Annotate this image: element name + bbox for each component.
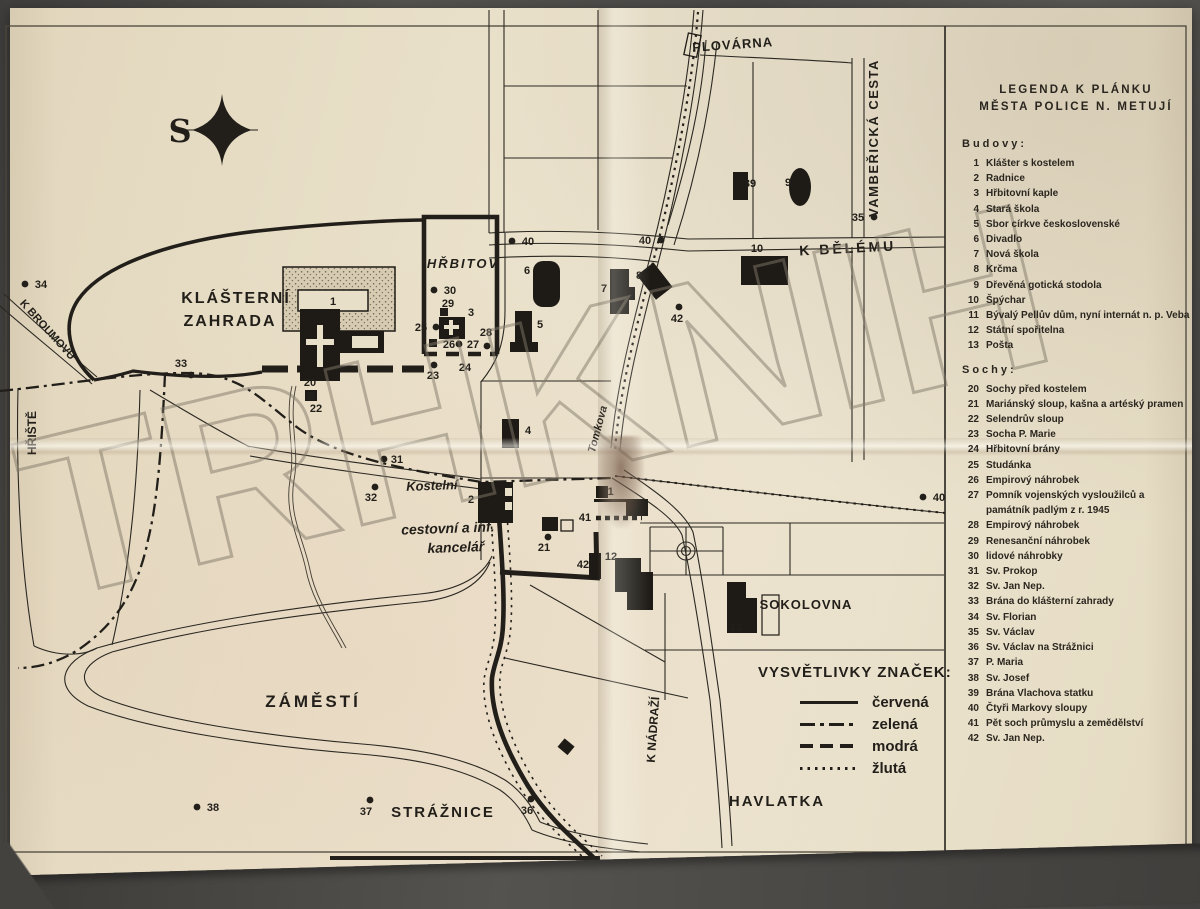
marker-dot: [194, 804, 201, 811]
marker-number: 5: [537, 319, 543, 331]
map-label: HŘBITOV: [427, 256, 499, 271]
legend-item: 21Mariánský sloup, kašna a artéský prame…: [962, 397, 1190, 412]
legend-item-text: Brána Vlachova statku: [986, 686, 1190, 701]
legend-item: 31Sv. Prokop: [962, 564, 1190, 579]
marker-number: 40: [933, 492, 945, 504]
legend-item-text: Renesanční náhrobek: [986, 534, 1190, 549]
map-label: Kostelní: [406, 477, 459, 494]
legend-item-text: lidové náhrobky: [986, 549, 1190, 564]
legend-title-line1: LEGENDA K PLÁNKU: [962, 82, 1190, 99]
marker-number: 40: [639, 235, 651, 247]
building-8: [637, 262, 673, 299]
line-style-sample-dashed: [800, 744, 858, 748]
marker-dot: [431, 287, 438, 294]
legend-item-text: Socha P. Marie: [986, 427, 1190, 442]
map-label: SOKOLOVNA: [760, 597, 853, 612]
legend-item-text: Klášter s kostelem: [986, 156, 1190, 171]
buildings: [283, 33, 811, 755]
line-style-sample-solid: [800, 701, 858, 704]
legend-item-text: Pomník vojenských vysloužilců a památník…: [986, 488, 1190, 518]
legend-item: 32Sv. Jan Nep.: [962, 579, 1190, 594]
marker-number: 34: [35, 279, 48, 291]
legend-item-text: Empirový náhrobek: [986, 473, 1190, 488]
map-label: ZÁMĚSTÍ: [265, 692, 361, 711]
marker-number: 6: [524, 265, 530, 277]
legend-item-number: 25: [962, 458, 979, 473]
marker-dot: [431, 362, 438, 369]
legend-item-number: 33: [962, 594, 979, 609]
legend-item-number: 10: [962, 293, 979, 308]
legend-item-number: 29: [962, 534, 979, 549]
marker-number: 42: [577, 559, 589, 571]
legend-item: 3Hřbitovní kaple: [962, 186, 1190, 201]
legend-item-number: 1: [962, 156, 979, 171]
legend-item-number: 35: [962, 625, 979, 640]
legend-item-text: Mariánský sloup, kašna a artéský pramen: [986, 397, 1190, 412]
marker-number: 9: [785, 177, 791, 189]
map-label: STRÁŽNICE: [391, 803, 495, 821]
symbols-legend-entry: žlutá: [758, 757, 968, 779]
line-style-label: modrá: [872, 738, 918, 755]
legend-item-text: P. Maria: [986, 655, 1190, 670]
legend-item-number: 2: [962, 171, 979, 186]
line-style-label: žlutá: [872, 760, 906, 777]
legend-item-number: 32: [962, 579, 979, 594]
legend-item: 33Brána do klášterní zahrady: [962, 594, 1190, 609]
marker-dot: [545, 534, 552, 541]
route-green-dashdot: [0, 373, 611, 482]
marker-dot: [920, 494, 927, 501]
compass-rose: S: [168, 94, 258, 166]
legend-item: 39Brána Vlachova statku: [962, 686, 1190, 701]
marker-number: 20: [304, 377, 316, 389]
marker-number: 1: [330, 296, 336, 308]
legend-item-text: Dřevěná gotická stodola: [986, 278, 1190, 293]
legend-item: 41Pět soch průmyslu a zemědělství: [962, 716, 1190, 731]
marker-number: 31: [391, 454, 403, 466]
legend-item: 25Studánka: [962, 458, 1190, 473]
legend-item-text: Empirový náhrobek: [986, 518, 1190, 533]
legend-item: 26Empirový náhrobek: [962, 473, 1190, 488]
marker-number: 30: [444, 285, 456, 297]
legend-item-number: 36: [962, 640, 979, 655]
marker-dot: [676, 304, 683, 311]
marker-dot: [528, 796, 535, 803]
legend-item-text: Státní spořitelna: [986, 323, 1190, 338]
marker-number: 24: [459, 362, 472, 374]
marker-number: 12: [605, 551, 617, 563]
legend-item-text: Sv. Josef: [986, 671, 1190, 686]
route-red-main: [492, 502, 594, 858]
legend-item-text: Čtyři Markovy sloupy: [986, 701, 1190, 716]
marker-dot: [433, 324, 440, 331]
map-label: KLÁŠTERNÍ: [181, 288, 291, 307]
legend-sections: Budovy:1Klášter s kostelem2Radnice3Hřbit…: [962, 138, 1190, 747]
map-label: ZAHRADA: [183, 313, 276, 330]
building-4: [502, 419, 519, 448]
legend-item: 12Státní spořitelna: [962, 323, 1190, 338]
map-label: HŘIŠTĚ: [24, 411, 39, 455]
marker-dot: [367, 797, 374, 804]
marker-number: 8: [636, 270, 642, 282]
marker-number: 33: [175, 358, 187, 370]
symbols-legend-title: VYSVĚTLIVKY ZNAČEK:: [758, 664, 968, 681]
legend-item-text: Brána do klášterní zahrady: [986, 594, 1190, 609]
marker-square: [429, 339, 437, 347]
marker-number: 42: [671, 313, 683, 325]
marker-number: 7: [601, 283, 607, 295]
building-12: [615, 558, 653, 610]
legend-item-text: Sv. Václav: [986, 625, 1190, 640]
marker-number: 32: [365, 492, 377, 504]
marker-dot: [22, 281, 29, 288]
legend-item-text: Hřbitovní kaple: [986, 186, 1190, 201]
legend-item-text: Studánka: [986, 458, 1190, 473]
legend-item: 4Stará škola: [962, 202, 1190, 217]
legend-section-heading: Sochy:: [962, 364, 1190, 376]
marker-dot: [188, 372, 195, 379]
legend-item-number: 27: [962, 488, 979, 518]
marker-number: 23: [427, 370, 439, 382]
legend-item-text: Sv. Jan Nep.: [986, 731, 1190, 746]
diamond-building: [558, 738, 575, 755]
legend-item-number: 31: [962, 564, 979, 579]
line-style-sample-dotted: [800, 767, 858, 770]
marker-number: 4: [525, 425, 532, 437]
marker-square: [307, 392, 315, 400]
legend-title: LEGENDA K PLÁNKU MĚSTA POLICE N. METUJÍ: [962, 82, 1190, 116]
marker-number: 41: [579, 512, 591, 524]
legend-title-line2: MĚSTA POLICE N. METUJÍ: [962, 99, 1190, 116]
legend-item-text: Nová škola: [986, 247, 1190, 262]
legend-item-text: Sochy před kostelem: [986, 382, 1190, 397]
legend-item: 28Empirový náhrobek: [962, 518, 1190, 533]
building-6: [533, 261, 560, 307]
legend-item: 23Socha P. Marie: [962, 427, 1190, 442]
compass-north-label: S: [168, 112, 191, 150]
legend-item-text: Sbor církve československé: [986, 217, 1190, 232]
legend-item-number: 3: [962, 186, 979, 201]
legend-item-text: Divadlo: [986, 232, 1190, 247]
marker-number: 2: [468, 494, 474, 506]
legend-item: 2Radnice: [962, 171, 1190, 186]
marker-number: 37: [360, 806, 372, 818]
legend-item-text: Krčma: [986, 262, 1190, 277]
legend-item-text: Pět soch průmyslu a zemědělství: [986, 716, 1190, 731]
legend-item: 24Hřbitovní brány: [962, 442, 1190, 457]
legend-item-text: Pošta: [986, 338, 1190, 353]
legend-item: 34Sv. Florian: [962, 610, 1190, 625]
marker-dot: [509, 238, 516, 245]
legend-item-number: 28: [962, 518, 979, 533]
legend-item-number: 12: [962, 323, 979, 338]
legend-item-number: 4: [962, 202, 979, 217]
marker-dot: [484, 343, 491, 350]
legend-item-number: 20: [962, 382, 979, 397]
symbols-legend-entry: modrá: [758, 735, 968, 757]
symbols-legend-rows: červenázelenámodrážlutá: [758, 691, 968, 779]
map-label: K NÁDRAŽÍ: [643, 696, 663, 764]
legend-item-number: 22: [962, 412, 979, 427]
marker-number: 28: [480, 327, 492, 339]
line-style-sample-dashdot: [800, 723, 858, 726]
legend-item-number: 9: [962, 278, 979, 293]
route-red-flank1: [484, 504, 586, 860]
legend-item: 7Nová škola: [962, 247, 1190, 262]
marker-number: 10: [751, 243, 763, 255]
building-5: [510, 311, 538, 352]
marker-number: 26: [443, 339, 455, 351]
legend-item-number: 6: [962, 232, 979, 247]
route-green-branch: [18, 374, 165, 668]
legend-item: 27Pomník vojenských vysloužilců a památn…: [962, 488, 1190, 518]
legend-item-text: Radnice: [986, 171, 1190, 186]
map-label: kancelář: [427, 538, 486, 556]
marker-number: 27: [467, 339, 479, 351]
legend-item-text: Sv. Florian: [986, 610, 1190, 625]
legend-item: 35Sv. Václav: [962, 625, 1190, 640]
marker-dot: [658, 237, 665, 244]
marker-dot: [871, 214, 878, 221]
map-label: HAVLATKA: [729, 793, 825, 810]
legend-panel: LEGENDA K PLÁNKU MĚSTA POLICE N. METUJÍ …: [962, 82, 1190, 747]
legend-item-number: 13: [962, 338, 979, 353]
marker-number: 22: [310, 403, 322, 415]
building-10: [741, 256, 788, 285]
legend-item: 38Sv. Josef: [962, 671, 1190, 686]
map-label: Tomkova: [586, 405, 610, 454]
legend-item-number: 7: [962, 247, 979, 262]
legend-item-number: 21: [962, 397, 979, 412]
legend-item: 5Sbor církve československé: [962, 217, 1190, 232]
map-label: cestovní a inf.: [401, 518, 495, 537]
symbols-legend-entry: zelená: [758, 713, 968, 735]
legend-item: 11Bývalý Pellův dům, nyní internát n. p.…: [962, 308, 1190, 323]
legend-item: 9Dřevěná gotická stodola: [962, 278, 1190, 293]
legend-section-heading: Budovy:: [962, 138, 1190, 150]
marker-dot: [381, 456, 388, 463]
marker-number: 35: [852, 212, 864, 224]
legend-item: 1Klášter s kostelem: [962, 156, 1190, 171]
legend-item: 22Selendrův sloup: [962, 412, 1190, 427]
legend-item-text: Selendrův sloup: [986, 412, 1190, 427]
paper-corner-bottom-left: [0, 842, 70, 909]
legend-item-text: Sv. Prokop: [986, 564, 1190, 579]
legend-item: 37P. Maria: [962, 655, 1190, 670]
legend-item: 13Pošta: [962, 338, 1190, 353]
legend-item-text: Hřbitovní brány: [986, 442, 1190, 457]
marker-number: 39: [744, 178, 756, 190]
marker-dot: [372, 484, 379, 491]
marker-number: 21: [538, 542, 550, 554]
map-label: K BĚLÉMU: [799, 236, 897, 258]
legend-item: 36Sv. Václav na Strážnici: [962, 640, 1190, 655]
building-9: [789, 168, 811, 206]
marker-number: 36: [521, 805, 533, 817]
marker-number: 40: [522, 236, 534, 248]
legend-item-number: 11: [962, 308, 979, 323]
marker-number: 25: [415, 322, 427, 334]
building-7: [610, 269, 635, 314]
marker-dot: [456, 341, 463, 348]
line-style-label: zelená: [872, 716, 918, 733]
legend-item-text: Sv. Jan Nep.: [986, 579, 1190, 594]
symbols-legend-entry: červená: [758, 691, 968, 713]
map-label: PLOVÁRNA: [692, 34, 774, 55]
marker-number: 13: [730, 622, 742, 634]
legend-item-number: 26: [962, 473, 979, 488]
legend-item-text: Bývalý Pellův dům, nyní internát n. p. V…: [986, 308, 1190, 323]
legend-item-text: Špýchar: [986, 293, 1190, 308]
marker-number: 29: [442, 298, 454, 310]
legend-item-number: 34: [962, 610, 979, 625]
legend-item-number: 8: [962, 262, 979, 277]
legend-item-number: 23: [962, 427, 979, 442]
legend-item: 42Sv. Jan Nep.: [962, 731, 1190, 746]
legend-item: 30lidové náhrobky: [962, 549, 1190, 564]
legend-item: 8Krčma: [962, 262, 1190, 277]
marker-number: 3: [468, 307, 474, 319]
route-red-east: [500, 572, 600, 578]
legend-item: 40Čtyři Markovy sloupy: [962, 701, 1190, 716]
marker-number: 11: [602, 486, 614, 498]
legend-item-number: 30: [962, 549, 979, 564]
legend-item-number: 24: [962, 442, 979, 457]
legend-item: 29Renesanční náhrobek: [962, 534, 1190, 549]
line-style-label: červená: [872, 694, 929, 711]
legend-item-number: 5: [962, 217, 979, 232]
legend-item-text: Stará škola: [986, 202, 1190, 217]
legend-item-text: Sv. Václav na Strážnici: [986, 640, 1190, 655]
symbols-legend: VYSVĚTLIVKY ZNAČEK: červenázelenámodrážl…: [758, 664, 968, 779]
map-label: VAMBEŘICKÁ CESTA: [866, 59, 881, 217]
marker-number: 38: [207, 802, 219, 814]
legend-item: 20Sochy před kostelem: [962, 382, 1190, 397]
legend-item: 6Divadlo: [962, 232, 1190, 247]
legend-item: 10Špýchar: [962, 293, 1190, 308]
